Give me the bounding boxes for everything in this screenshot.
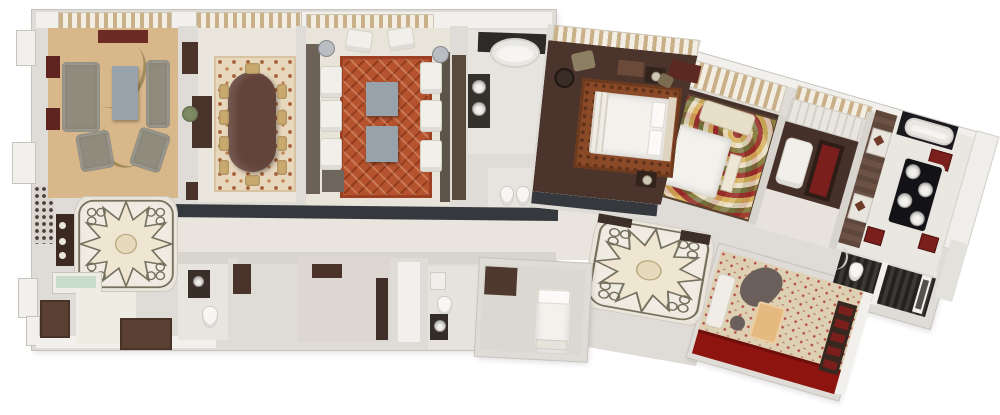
flower-vase	[59, 222, 66, 229]
luggage-bench	[617, 60, 644, 78]
glass-top	[56, 276, 96, 288]
pilaster-c	[18, 278, 38, 318]
flower-vase	[59, 252, 66, 259]
dining-chair	[277, 136, 287, 151]
pilaster-b	[12, 142, 36, 184]
utility-dark-door	[376, 278, 388, 340]
plant	[182, 106, 198, 122]
square-table	[366, 126, 398, 162]
dining-chair	[219, 110, 229, 125]
pillow	[538, 289, 571, 305]
coffee-table	[112, 66, 138, 120]
sideboard	[192, 96, 212, 148]
salon-armchair	[420, 140, 442, 172]
sofa	[62, 62, 100, 132]
salon-armchair	[345, 28, 374, 53]
dining-chair	[219, 84, 229, 99]
round-side-table	[432, 46, 449, 63]
salon-armchair	[320, 138, 342, 170]
dining-table	[228, 72, 276, 172]
wall-panel-red	[46, 56, 60, 78]
bathtub	[490, 38, 540, 68]
hall-cabinet	[233, 264, 251, 294]
bedroom1-group	[528, 24, 709, 228]
console-table	[98, 30, 148, 43]
salon-armchair	[387, 26, 416, 51]
salon-armchair	[420, 100, 442, 132]
dining-chair	[245, 175, 260, 186]
floorplan-canvas	[0, 0, 1000, 415]
salon-armchair	[420, 62, 442, 94]
bed-foot-rail	[535, 339, 567, 351]
dark-door-panel	[452, 55, 466, 200]
closet-floor	[120, 318, 172, 350]
dining-chair	[277, 160, 287, 175]
dining-chair	[277, 84, 287, 99]
salon-cabinet	[322, 170, 344, 192]
wall-panel-red	[46, 108, 60, 130]
dining-chair	[219, 136, 229, 151]
utility-dresser	[312, 264, 342, 278]
salon-armchair	[320, 100, 342, 132]
salon-panel-left	[306, 44, 320, 194]
dining-chair	[245, 63, 260, 74]
pilaster-a	[16, 30, 36, 66]
dining-chair	[219, 160, 229, 175]
armchair	[75, 129, 115, 172]
vanity-sink	[472, 102, 486, 116]
dining-chair	[277, 110, 287, 125]
wall-door-white	[398, 262, 420, 342]
armchair	[146, 60, 170, 128]
bath2-fixture	[430, 272, 446, 290]
pillow	[647, 129, 664, 156]
staff-room-mat	[484, 266, 517, 296]
vanity-sink	[472, 80, 486, 94]
round-side-table	[318, 40, 335, 57]
pillow	[650, 101, 667, 128]
round-sink	[434, 320, 446, 332]
salon-armchair	[320, 66, 342, 98]
powder-sink	[193, 276, 204, 287]
square-table	[366, 82, 398, 116]
closet-floor	[40, 300, 70, 338]
flower-vase	[59, 238, 66, 245]
staff-room-group	[475, 258, 592, 362]
